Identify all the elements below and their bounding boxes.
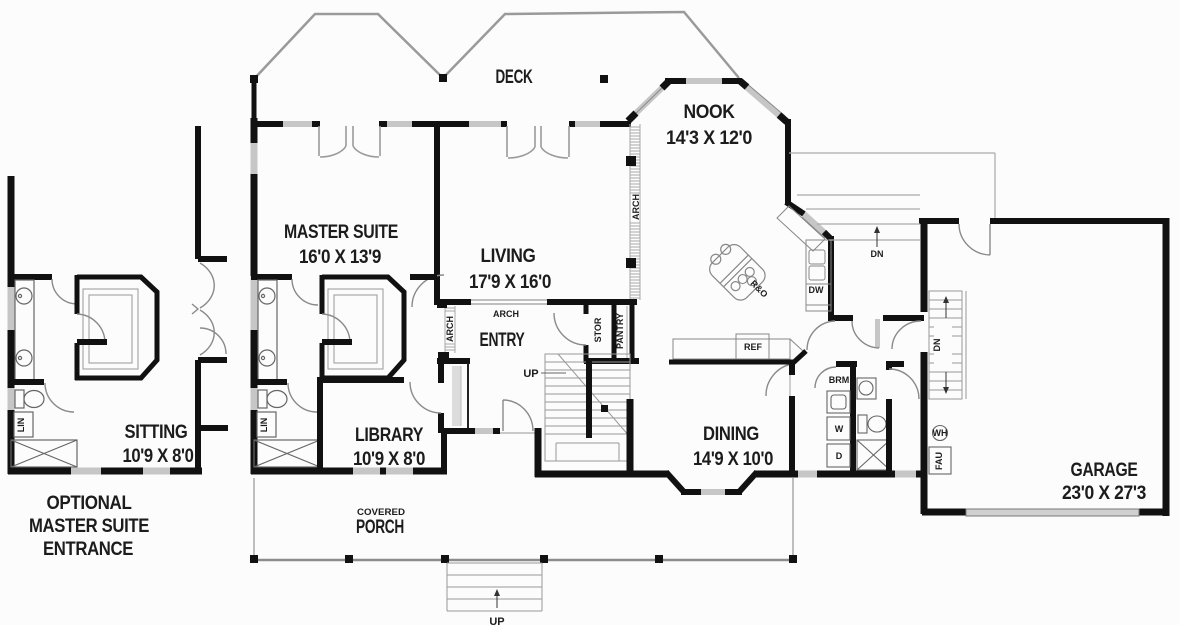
svg-text:PANTRY: PANTRY — [615, 313, 625, 349]
svg-text:COVERED: COVERED — [357, 507, 406, 517]
svg-text:BRM: BRM — [829, 375, 850, 385]
svg-text:DN: DN — [932, 339, 942, 352]
svg-text:LIVING: LIVING — [481, 246, 536, 267]
svg-text:17'9 X 16'0: 17'9 X 16'0 — [469, 272, 551, 293]
svg-text:PORCH: PORCH — [356, 517, 404, 538]
svg-text:14'9 X 10'0: 14'9 X 10'0 — [693, 449, 773, 470]
svg-text:DINING: DINING — [703, 424, 759, 445]
svg-text:14'3 X 12'0: 14'3 X 12'0 — [666, 128, 752, 149]
svg-text:NOOK: NOOK — [684, 102, 736, 123]
svg-text:23'0 X 27'3: 23'0 X 27'3 — [1062, 483, 1146, 504]
svg-text:LIN: LIN — [16, 418, 26, 433]
svg-text:16'0 X 13'9: 16'0 X 13'9 — [299, 247, 381, 268]
svg-text:10'9 X 8'0: 10'9 X 8'0 — [353, 449, 425, 470]
svg-text:FAU: FAU — [934, 452, 944, 470]
svg-text:10'9 X 8'0: 10'9 X 8'0 — [123, 446, 194, 467]
svg-text:DN: DN — [871, 249, 884, 259]
svg-text:ARCH: ARCH — [493, 309, 519, 319]
svg-text:DECK: DECK — [496, 67, 533, 88]
svg-text:MASTER SUITE: MASTER SUITE — [284, 222, 398, 243]
svg-text:UP: UP — [523, 368, 538, 380]
svg-text:LIN: LIN — [259, 418, 269, 433]
svg-text:D: D — [836, 451, 843, 461]
svg-text:ENTRANCE: ENTRANCE — [43, 539, 133, 560]
svg-text:WH: WH — [933, 428, 948, 438]
svg-text:DW: DW — [809, 285, 824, 295]
svg-text:STOR: STOR — [593, 317, 603, 342]
svg-text:MASTER SUITE: MASTER SUITE — [29, 516, 149, 537]
svg-text:UP: UP — [489, 616, 504, 625]
svg-text:OPTIONAL: OPTIONAL — [47, 493, 133, 514]
svg-text:W: W — [835, 424, 844, 434]
svg-text:LIBRARY: LIBRARY — [355, 425, 424, 446]
svg-text:REF: REF — [744, 342, 763, 352]
svg-text:ARCH: ARCH — [631, 194, 641, 220]
svg-text:GARAGE: GARAGE — [1071, 460, 1138, 481]
svg-text:ENTRY: ENTRY — [480, 330, 526, 351]
svg-text:ARCH: ARCH — [445, 316, 455, 342]
svg-text:SITTING: SITTING — [125, 422, 188, 443]
